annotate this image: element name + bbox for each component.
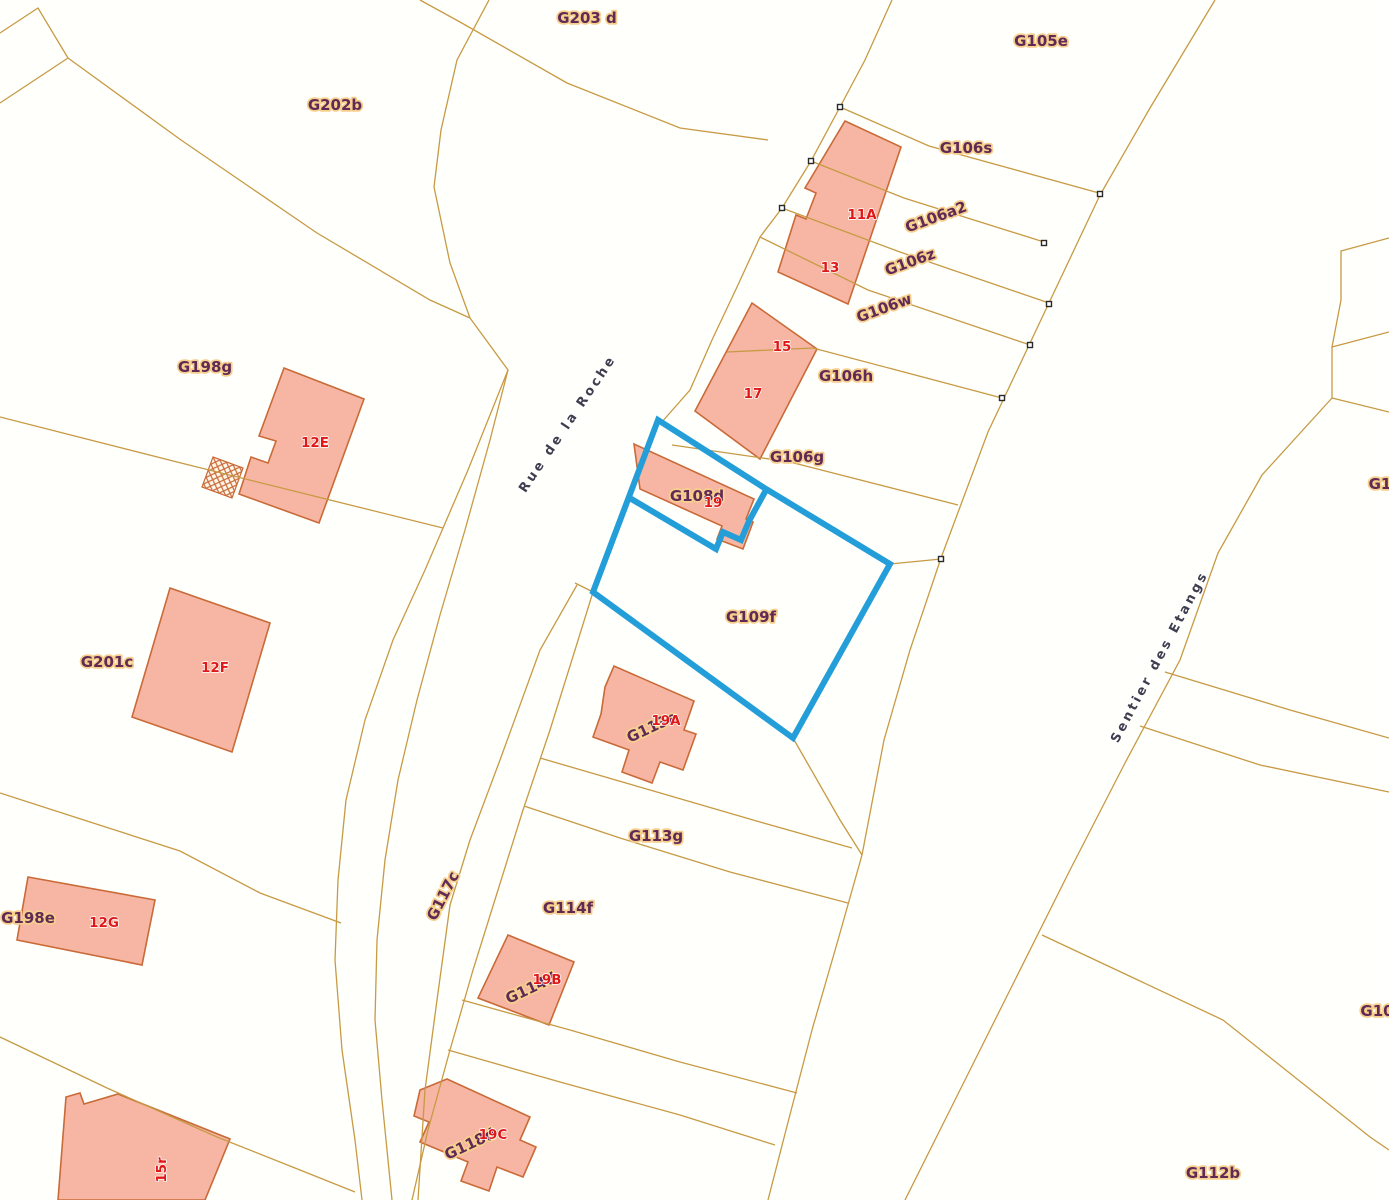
parcel-boundary-line [1165, 672, 1389, 738]
parcel-boundary-line [575, 583, 593, 592]
street-name-label: Rue de la Roche [516, 352, 619, 495]
parcel-boundary-line [1042, 935, 1389, 1150]
parcel-boundary-line [1332, 332, 1389, 412]
parcel-label: G198e [1, 909, 55, 927]
parcel-boundary-line [524, 806, 848, 903]
survey-point-marker [1047, 302, 1052, 307]
parcel-label: G1 [1369, 475, 1389, 493]
survey-point-marker [1028, 343, 1033, 348]
parcel-boundary-line [375, 370, 508, 1200]
parcel-label: G109f [726, 608, 777, 626]
parcel-boundary-line [335, 318, 508, 1200]
house-number-label: 19 [704, 495, 723, 511]
house-number-label: 12E [301, 435, 329, 451]
survey-point-marker [1042, 241, 1047, 246]
house-number-label: 17 [744, 386, 763, 402]
house-number-label: 15 [773, 339, 792, 355]
survey-point-marker [1098, 192, 1103, 197]
parcel-boundary-line [434, 0, 489, 318]
house-number-label: 19A [651, 713, 681, 729]
house-number-label: 19C [479, 1127, 508, 1143]
street-name-label: Sentier des Etangs [1108, 569, 1212, 746]
parcel-label: G113g [629, 827, 683, 845]
map-canvas[interactable]: G203 dG202bG105eG106sG106a2G106zG106wG10… [0, 0, 1389, 1200]
parcel-boundary-line [540, 758, 852, 848]
survey-point-marker [939, 557, 944, 562]
house-number-label: 11A [847, 207, 877, 223]
parcel-label: G10 [1360, 1002, 1389, 1020]
labels-layer: G203 dG202bG105eG106sG106a2G106zG106wG10… [1, 9, 1389, 1183]
parcel-boundary-line [0, 417, 443, 528]
parcel-label: G106s [940, 139, 993, 157]
parcel-boundary-line [890, 559, 941, 564]
parcel-label: G114f [543, 899, 594, 917]
parcel-label: G198g [178, 358, 232, 376]
parcel-boundary-line [462, 1000, 797, 1093]
house-number-label: 12G [89, 915, 119, 931]
parcel-label: G117c [423, 869, 463, 924]
cadastral-map[interactable]: G203 dG202bG105eG106sG106a2G106zG106wG10… [0, 0, 1389, 1200]
buildings-layer [17, 121, 901, 1200]
parcel-label: G112b [1186, 1164, 1241, 1182]
parcel-label: G202b [308, 96, 363, 114]
parcel-boundary-line [0, 8, 68, 58]
parcel-label: G105e [1014, 32, 1068, 50]
house-number-label: 19B [532, 972, 561, 988]
parcel-boundary-line [793, 738, 862, 855]
building [58, 1093, 230, 1200]
parcel-label: G106z [882, 244, 938, 279]
cadastral-map-viewport[interactable]: G203 dG202bG105eG106sG106a2G106zG106wG10… [0, 0, 1389, 1200]
parcel-boundary-line [1332, 238, 1389, 347]
parcel-boundaries [0, 0, 1389, 1200]
survey-point-marker [1000, 396, 1005, 401]
parcel-boundary-line [1140, 726, 1389, 792]
survey-point-marker [809, 159, 814, 164]
building [695, 303, 817, 459]
parcel-label: G106a2 [903, 198, 969, 237]
house-number-label: 12F [201, 660, 229, 676]
survey-point-marker [780, 206, 785, 211]
parcel-label: G201c [81, 653, 134, 671]
parcel-label: G203 d [557, 9, 617, 27]
parcel-boundary-line [0, 58, 68, 103]
house-number-label: 15r [154, 1157, 170, 1183]
parcel-boundary-line [68, 58, 470, 318]
house-number-label: 13 [821, 260, 840, 276]
survey-point-marker [838, 105, 843, 110]
parcel-boundary-line [905, 398, 1332, 1200]
parcel-label: G106g [770, 448, 824, 466]
parcel-label: G106h [819, 367, 873, 385]
